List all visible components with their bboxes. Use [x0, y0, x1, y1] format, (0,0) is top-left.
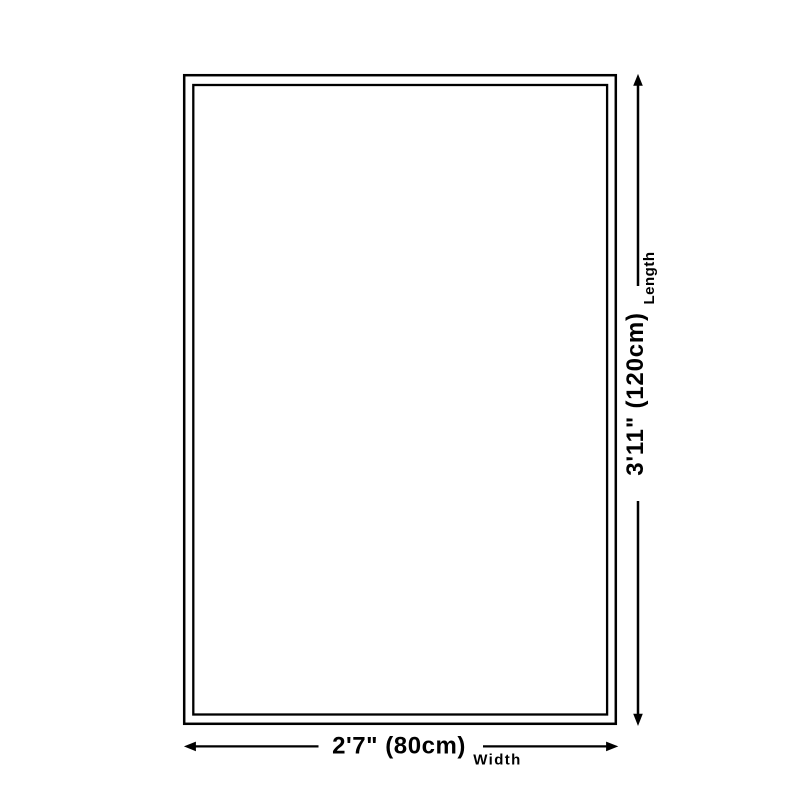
svg-text:2'7" (80cm): 2'7" (80cm) — [332, 733, 466, 760]
svg-text:Length: Length — [641, 252, 658, 305]
svg-text:Width: Width — [473, 752, 522, 769]
svg-text:3'11" (120cm): 3'11" (120cm) — [622, 312, 649, 476]
